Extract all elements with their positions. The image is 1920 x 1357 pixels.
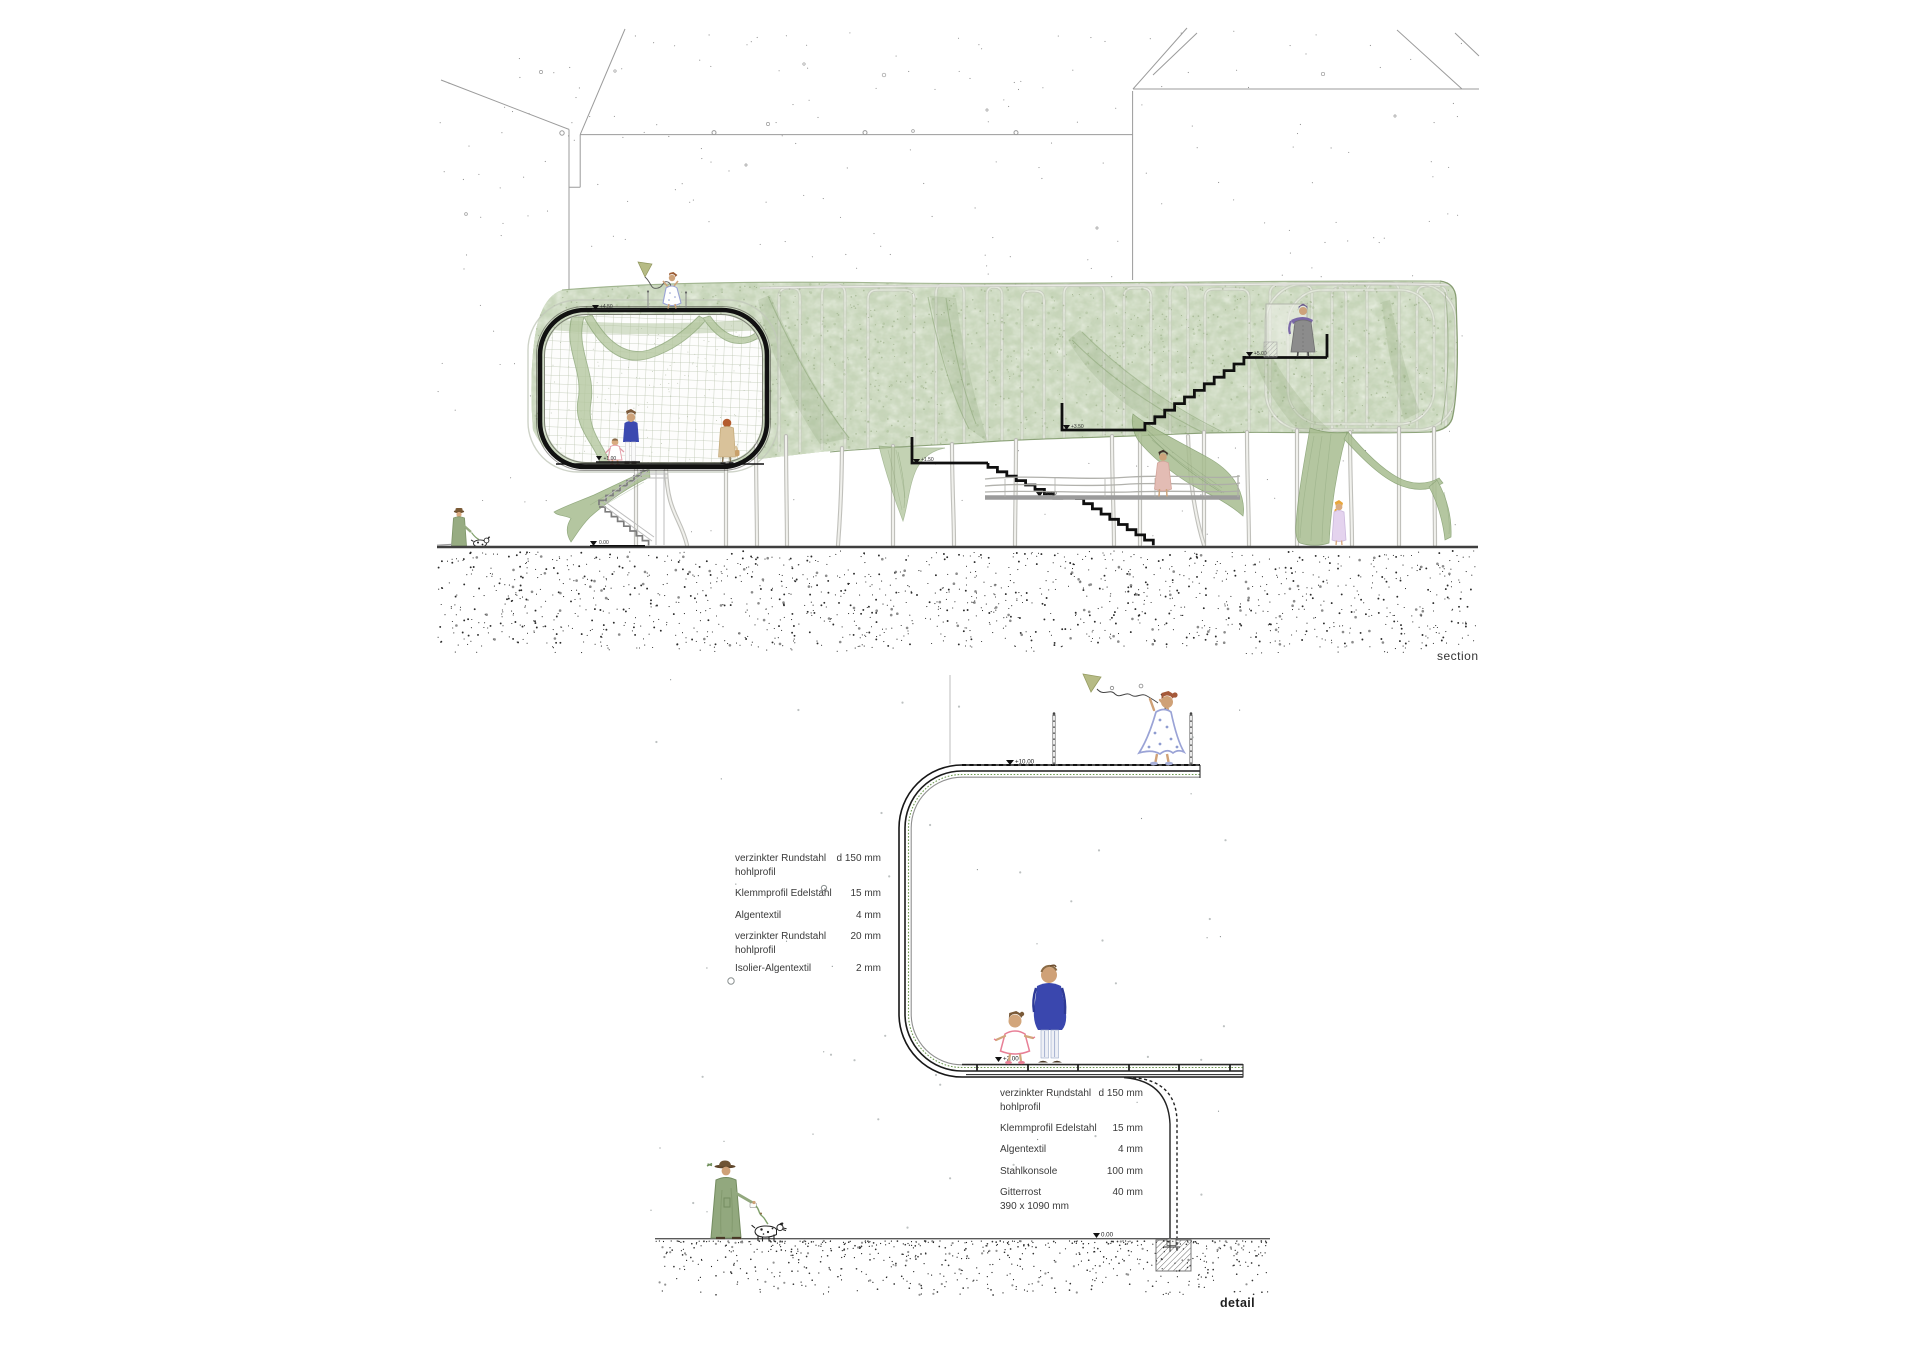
svg-text:verzinkter Rundstahl: verzinkter Rundstahl <box>735 931 826 942</box>
svg-text:Klemmprofil Edelstahl: Klemmprofil Edelstahl <box>1000 1123 1097 1134</box>
svg-text:Isolier-Algentextil: Isolier-Algentextil <box>735 963 811 974</box>
svg-text:+1.00: +1.00 <box>604 456 617 462</box>
svg-text:4 mm: 4 mm <box>856 910 881 921</box>
svg-text:+1.50: +1.50 <box>921 457 934 463</box>
svg-text:0.00: 0.00 <box>599 540 609 546</box>
svg-text:20 mm: 20 mm <box>850 931 881 942</box>
svg-text:390 x 1090 mm: 390 x 1090 mm <box>1000 1201 1069 1212</box>
svg-text:+3.50: +3.50 <box>1071 424 1084 430</box>
svg-text:+2.00: +2.00 <box>1003 1056 1019 1063</box>
svg-text:section: section <box>1437 649 1479 663</box>
svg-text:d 150 mm: d 150 mm <box>837 853 881 864</box>
svg-text:15 mm: 15 mm <box>850 888 881 899</box>
svg-text:detail: detail <box>1220 1296 1255 1310</box>
svg-text:d 150 mm: d 150 mm <box>1099 1088 1143 1099</box>
svg-text:Algentextil: Algentextil <box>735 910 781 921</box>
svg-text:40 mm: 40 mm <box>1112 1187 1143 1198</box>
svg-text:0.00: 0.00 <box>1101 1232 1114 1239</box>
svg-text:Algentextil: Algentextil <box>1000 1144 1046 1155</box>
svg-text:hohlprofil: hohlprofil <box>1000 1102 1041 1113</box>
svg-text:Gitterrost: Gitterrost <box>1000 1187 1041 1198</box>
svg-text:2 mm: 2 mm <box>856 963 881 974</box>
svg-text:+10.00: +10.00 <box>1015 759 1035 766</box>
svg-text:+4.50: +4.50 <box>600 304 613 310</box>
svg-text:100 mm: 100 mm <box>1107 1166 1143 1177</box>
svg-text:Stahlkonsole: Stahlkonsole <box>1000 1166 1058 1177</box>
svg-text:Klemmprofil Edelstahl: Klemmprofil Edelstahl <box>735 888 832 899</box>
svg-text:hohlprofil: hohlprofil <box>735 945 776 956</box>
svg-text:verzinkter Rundstahl: verzinkter Rundstahl <box>735 853 826 864</box>
svg-text:4 mm: 4 mm <box>1118 1144 1143 1155</box>
svg-text:15 mm: 15 mm <box>1112 1123 1143 1134</box>
svg-text:hohlprofil: hohlprofil <box>735 867 776 878</box>
svg-text:verzinkter Rundstahl: verzinkter Rundstahl <box>1000 1088 1091 1099</box>
